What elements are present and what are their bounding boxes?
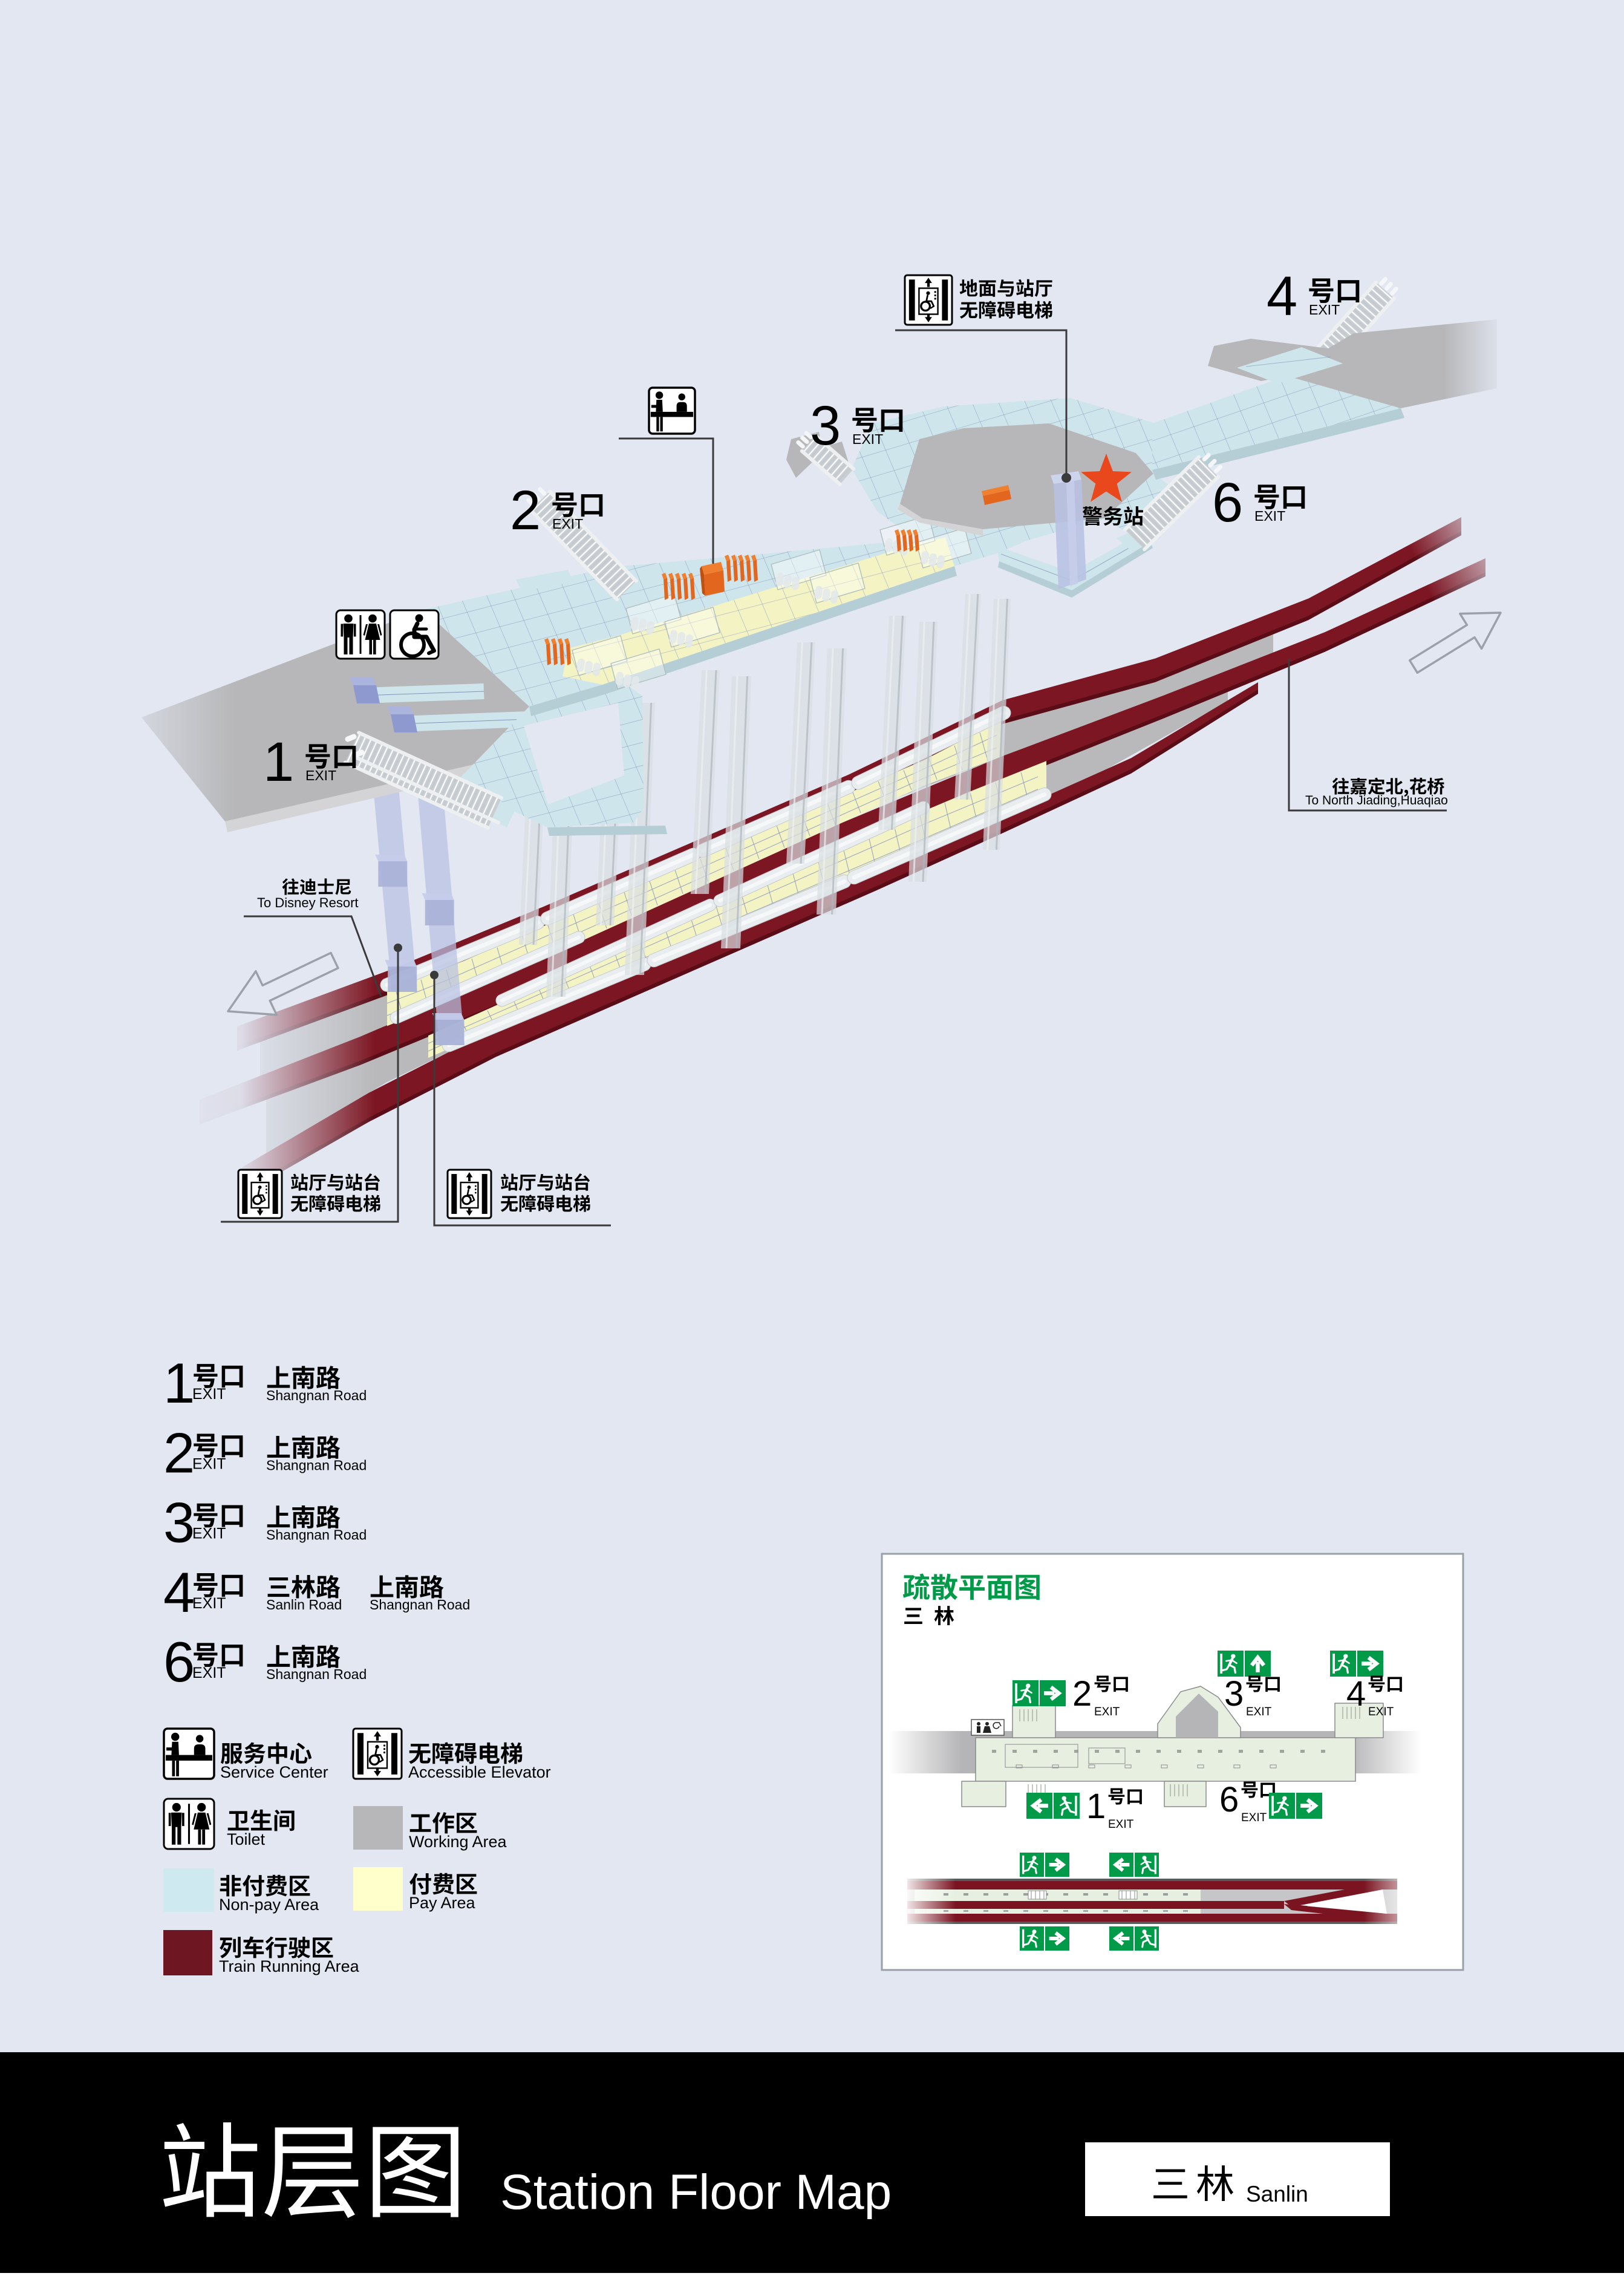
svg-text:4: 4 [163,1560,195,1624]
svg-text:2: 2 [1072,1674,1092,1714]
svg-text:To Disney Resort: To Disney Resort [257,895,359,910]
svg-text:1: 1 [163,1351,195,1415]
svg-text:EXIT: EXIT [852,431,883,447]
svg-text:3: 3 [810,395,841,457]
svg-text:EXIT: EXIT [305,768,336,783]
svg-text:Toilet: Toilet [227,1830,266,1848]
svg-text:Accessible Elevator: Accessible Elevator [408,1763,551,1781]
svg-text:EXIT: EXIT [192,1665,226,1681]
svg-text:EXIT: EXIT [1108,1818,1134,1831]
svg-text:Station Floor Map: Station Floor Map [500,2165,892,2220]
svg-text:EXIT: EXIT [192,1455,226,1472]
svg-text:EXIT: EXIT [192,1386,226,1403]
svg-text:EXIT: EXIT [192,1525,226,1542]
svg-text:4: 4 [1267,266,1297,327]
svg-text:EXIT: EXIT [1241,1811,1267,1824]
svg-text:Shangnan Road: Shangnan Road [370,1597,470,1612]
svg-text:1: 1 [263,731,294,793]
svg-text:Shangnan Road: Shangnan Road [266,1457,367,1473]
svg-text:2: 2 [163,1421,195,1484]
svg-text:To North Jiading,Huaqiao: To North Jiading,Huaqiao [1305,794,1448,807]
svg-text:EXIT: EXIT [1254,508,1285,524]
svg-text:6: 6 [1212,472,1243,533]
svg-text:Shangnan Road: Shangnan Road [266,1527,367,1543]
svg-text:Working Area: Working Area [409,1833,507,1851]
svg-text:Train Running Area: Train Running Area [219,1957,360,1975]
svg-text:4: 4 [1346,1674,1366,1714]
svg-text:3: 3 [1224,1674,1244,1714]
svg-text:3: 3 [163,1491,195,1554]
svg-text:Shangnan Road: Shangnan Road [266,1387,367,1403]
svg-text:EXIT: EXIT [192,1595,226,1612]
svg-text:Service Center: Service Center [220,1763,328,1781]
svg-text:Sanlin: Sanlin [1246,2182,1308,2206]
svg-text:2: 2 [510,480,541,541]
svg-text:1: 1 [1086,1787,1106,1826]
svg-text:EXIT: EXIT [552,516,583,532]
svg-text:Non-pay Area: Non-pay Area [219,1896,319,1914]
svg-text:EXIT: EXIT [1368,1706,1394,1718]
svg-text:EXIT: EXIT [1094,1706,1120,1718]
svg-text:EXIT: EXIT [1309,302,1340,318]
svg-text:EXIT: EXIT [1246,1706,1272,1718]
svg-text:6: 6 [163,1630,195,1694]
svg-text:6: 6 [1219,1780,1239,1819]
svg-text:Pay Area: Pay Area [409,1894,476,1912]
svg-text:Shangnan Road: Shangnan Road [266,1666,367,1682]
svg-text:Sanlin Road: Sanlin Road [266,1597,342,1612]
